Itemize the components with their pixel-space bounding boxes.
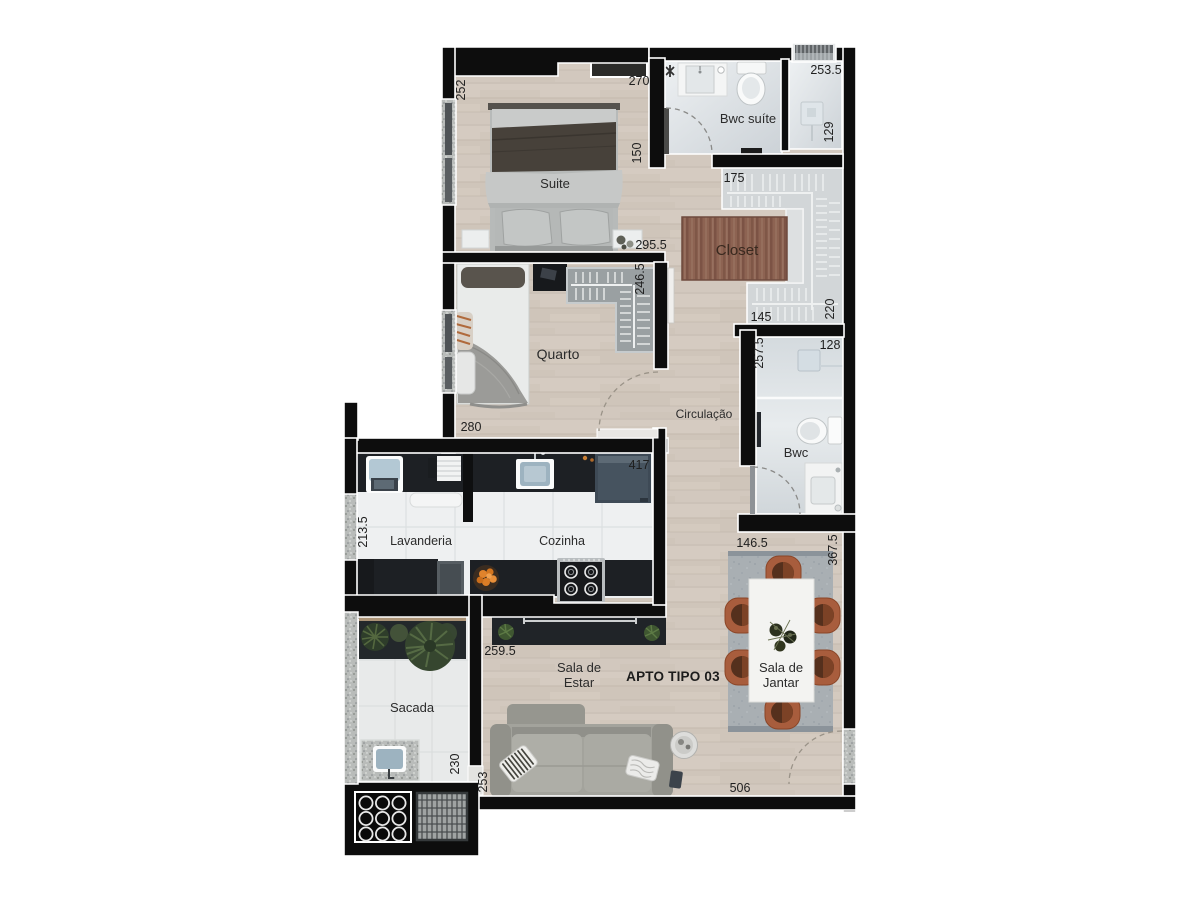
- svg-text:146.5: 146.5: [736, 536, 767, 550]
- svg-text:253: 253: [476, 772, 490, 793]
- svg-text:Circulação: Circulação: [676, 407, 733, 421]
- svg-text:270: 270: [629, 74, 650, 88]
- svg-text:175: 175: [724, 171, 745, 185]
- svg-text:APTO TIPO 03: APTO TIPO 03: [626, 669, 720, 684]
- svg-text:257.5: 257.5: [752, 337, 766, 368]
- svg-text:213.5: 213.5: [356, 516, 370, 547]
- svg-text:295.5: 295.5: [635, 238, 666, 252]
- svg-text:Cozinha: Cozinha: [539, 534, 585, 548]
- svg-text:Suite: Suite: [540, 176, 570, 191]
- svg-text:Jantar: Jantar: [763, 675, 800, 690]
- svg-text:252: 252: [454, 80, 468, 101]
- svg-text:Sala de: Sala de: [759, 660, 803, 675]
- svg-text:Lavanderia: Lavanderia: [390, 534, 452, 548]
- svg-text:Bwc suíte: Bwc suíte: [720, 111, 776, 126]
- svg-text:Sacada: Sacada: [390, 700, 435, 715]
- svg-text:506: 506: [730, 781, 751, 795]
- svg-text:Bwc: Bwc: [784, 445, 809, 460]
- svg-text:Estar: Estar: [564, 675, 595, 690]
- svg-text:150: 150: [630, 143, 644, 164]
- svg-text:128: 128: [820, 338, 841, 352]
- svg-text:280: 280: [461, 420, 482, 434]
- svg-text:367.5: 367.5: [826, 534, 840, 565]
- svg-text:259.5: 259.5: [484, 644, 515, 658]
- svg-text:246.5: 246.5: [633, 263, 647, 294]
- svg-text:220: 220: [823, 299, 837, 320]
- svg-text:Sala de: Sala de: [557, 660, 601, 675]
- svg-text:417: 417: [629, 458, 650, 472]
- svg-text:145: 145: [751, 310, 772, 324]
- svg-text:253.5: 253.5: [810, 63, 841, 77]
- svg-text:Closet: Closet: [716, 242, 759, 259]
- svg-text:230: 230: [448, 754, 462, 775]
- svg-text:Quarto: Quarto: [537, 346, 580, 362]
- svg-text:129: 129: [822, 122, 836, 143]
